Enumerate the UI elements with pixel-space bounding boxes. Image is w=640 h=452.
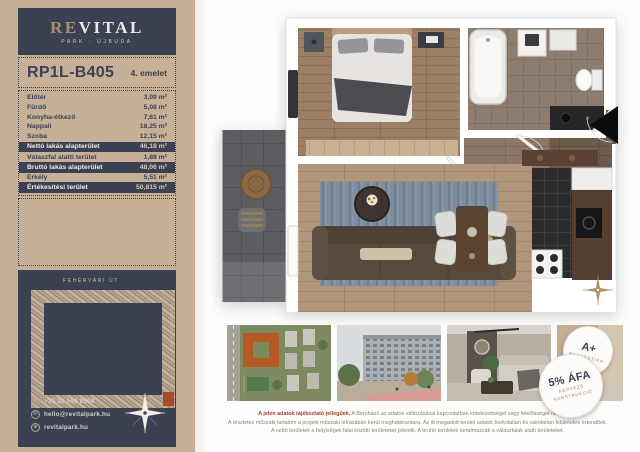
table-row-highlight: Bruttó lakás alapterület48,06 m² — [19, 162, 175, 173]
kitchen-island — [522, 150, 598, 166]
street-label-right: BARÁZDA UTCA — [169, 304, 174, 353]
table-row-highlight: Értékesítési terület50,815 m² — [19, 182, 175, 193]
photo-building-exterior — [337, 325, 441, 401]
phone-icon: ✆ — [31, 397, 40, 406]
area-value: 5,08 m² — [144, 104, 167, 111]
area-label: Erkély — [27, 174, 47, 181]
contact-email-text: hello@revitalpark.hu — [44, 411, 110, 418]
area-label: Bruttó lakás alapterület — [27, 164, 103, 171]
street-label-top: FEHÉRVÁRI ÚT — [18, 278, 164, 284]
contact-website-text: revitalpark.hu — [44, 424, 88, 431]
table-row: Erkély5,51 m² — [19, 173, 175, 183]
photo-interior — [447, 325, 551, 401]
balcony-door-living — [288, 226, 298, 276]
disclaimer-line-2: A részletes műszaki tartalom a projekt m… — [203, 419, 632, 428]
area-value: 3,09 m² — [144, 94, 167, 101]
dining-chair — [434, 239, 457, 266]
stamp-placeholder — [18, 198, 176, 266]
area-label: Előtér — [27, 94, 46, 101]
area-label: Válaszfal alatti terület — [27, 154, 97, 161]
balcony — [220, 130, 294, 302]
globe-icon: ⊕ — [31, 423, 40, 432]
bath-shelf — [550, 30, 576, 50]
contact-website[interactable]: ⊕ revitalpark.hu — [31, 423, 110, 432]
contact-block: ✆ +36 30 568 0504 ✉ hello@revitalpark.hu… — [31, 397, 110, 432]
bathroom — [468, 28, 604, 132]
area-label: Nappali — [27, 123, 52, 130]
bathtub — [470, 30, 506, 104]
toilet — [576, 70, 602, 91]
table-row-highlight: Nettó lakás alapterület46,18 m² — [19, 142, 175, 153]
area-value: 48,06 m² — [140, 164, 167, 171]
bed — [332, 28, 412, 122]
wall — [298, 156, 464, 164]
table-row: Nappali18,25 m² — [19, 122, 175, 132]
area-value: 50,815 m² — [136, 184, 167, 191]
washing-machine — [518, 30, 546, 56]
photo-aerial-view — [227, 325, 331, 401]
area-value: 12,15 m² — [140, 133, 167, 140]
table-row: Előtér3,09 m² — [19, 93, 175, 103]
area-value: 5,51 m² — [144, 174, 167, 181]
brand-name-vital: VITAL — [79, 18, 144, 37]
flyer-page: REVITAL PARK · ÚJBUDA RP1L-B405 4. emele… — [0, 0, 640, 452]
living-room — [288, 164, 532, 312]
compass-rose-icon — [122, 390, 168, 436]
siteplan-panel: FEHÉRVÁRI ÚT BARÁZDA UTCA ✆ +36 30 568 0… — [18, 270, 176, 447]
balcony-door-bedroom — [288, 70, 298, 118]
table-row: Válaszfal alatti terület1,88 m² — [19, 152, 175, 162]
brand-name-re: RE — [50, 18, 79, 37]
floor-plan — [220, 12, 620, 312]
area-label: Fürdő — [27, 104, 46, 111]
email-icon: ✉ — [31, 410, 40, 419]
disclaimer-line-3: A nettó területek a helyiségek falai köz… — [203, 427, 632, 436]
brand-name: REVITAL — [50, 19, 144, 36]
area-value: 46,18 m² — [140, 143, 167, 150]
area-value: 7,61 m² — [144, 114, 167, 121]
area-label: Konyha-étkező — [27, 114, 75, 121]
area-label: Értékesítési terület — [27, 184, 88, 191]
unit-header: RP1L-B405 4. emelet — [18, 57, 176, 88]
oven — [576, 208, 602, 238]
sidebar: REVITAL PARK · ÚJBUDA RP1L-B405 4. emele… — [0, 0, 195, 452]
brand-subtitle: PARK · ÚJBUDA — [61, 39, 133, 45]
contact-phone[interactable]: ✆ +36 30 568 0504 — [31, 397, 110, 406]
balcony-chair — [238, 208, 266, 232]
table-row: Fürdő5,08 m² — [19, 103, 175, 113]
table-row: Szoba12,15 m² — [19, 132, 175, 142]
coffee-table — [355, 187, 389, 221]
disclaimer-line1-rest: A Beruházó az adatok változásával kapcso… — [350, 411, 577, 417]
dining-table — [456, 206, 488, 272]
dining-chair — [434, 211, 457, 238]
balcony-table — [241, 169, 271, 199]
contact-email[interactable]: ✉ hello@revitalpark.hu — [31, 410, 110, 419]
area-label: Nettó lakás alapterület — [27, 143, 100, 150]
bedroom — [288, 28, 460, 158]
disclaimer-intro: A jelen adatok tájékoztató jellegűek. — [258, 411, 350, 417]
area-value: 1,88 m² — [144, 154, 167, 161]
kitchen — [522, 150, 616, 312]
area-label: Szoba — [27, 133, 47, 140]
wardrobe — [306, 140, 458, 156]
stove — [532, 250, 562, 278]
brand-logo: REVITAL PARK · ÚJBUDA — [18, 8, 176, 55]
table-row: Konyha-étkező7,61 m² — [19, 112, 175, 122]
area-table: Előtér3,09 m² Fürdő5,08 m² Konyha-étkező… — [18, 90, 176, 196]
unit-floor: 4. emelet — [131, 68, 167, 78]
unit-id: RP1L-B405 — [27, 64, 114, 82]
main-panel: A+ ENERGETIKA 5% ÁFA KEDVEZŐ KONSTRUKCIÓ… — [195, 0, 640, 452]
area-value: 18,25 m² — [140, 123, 167, 130]
contact-phone-text: +36 30 568 0504 — [44, 398, 94, 405]
